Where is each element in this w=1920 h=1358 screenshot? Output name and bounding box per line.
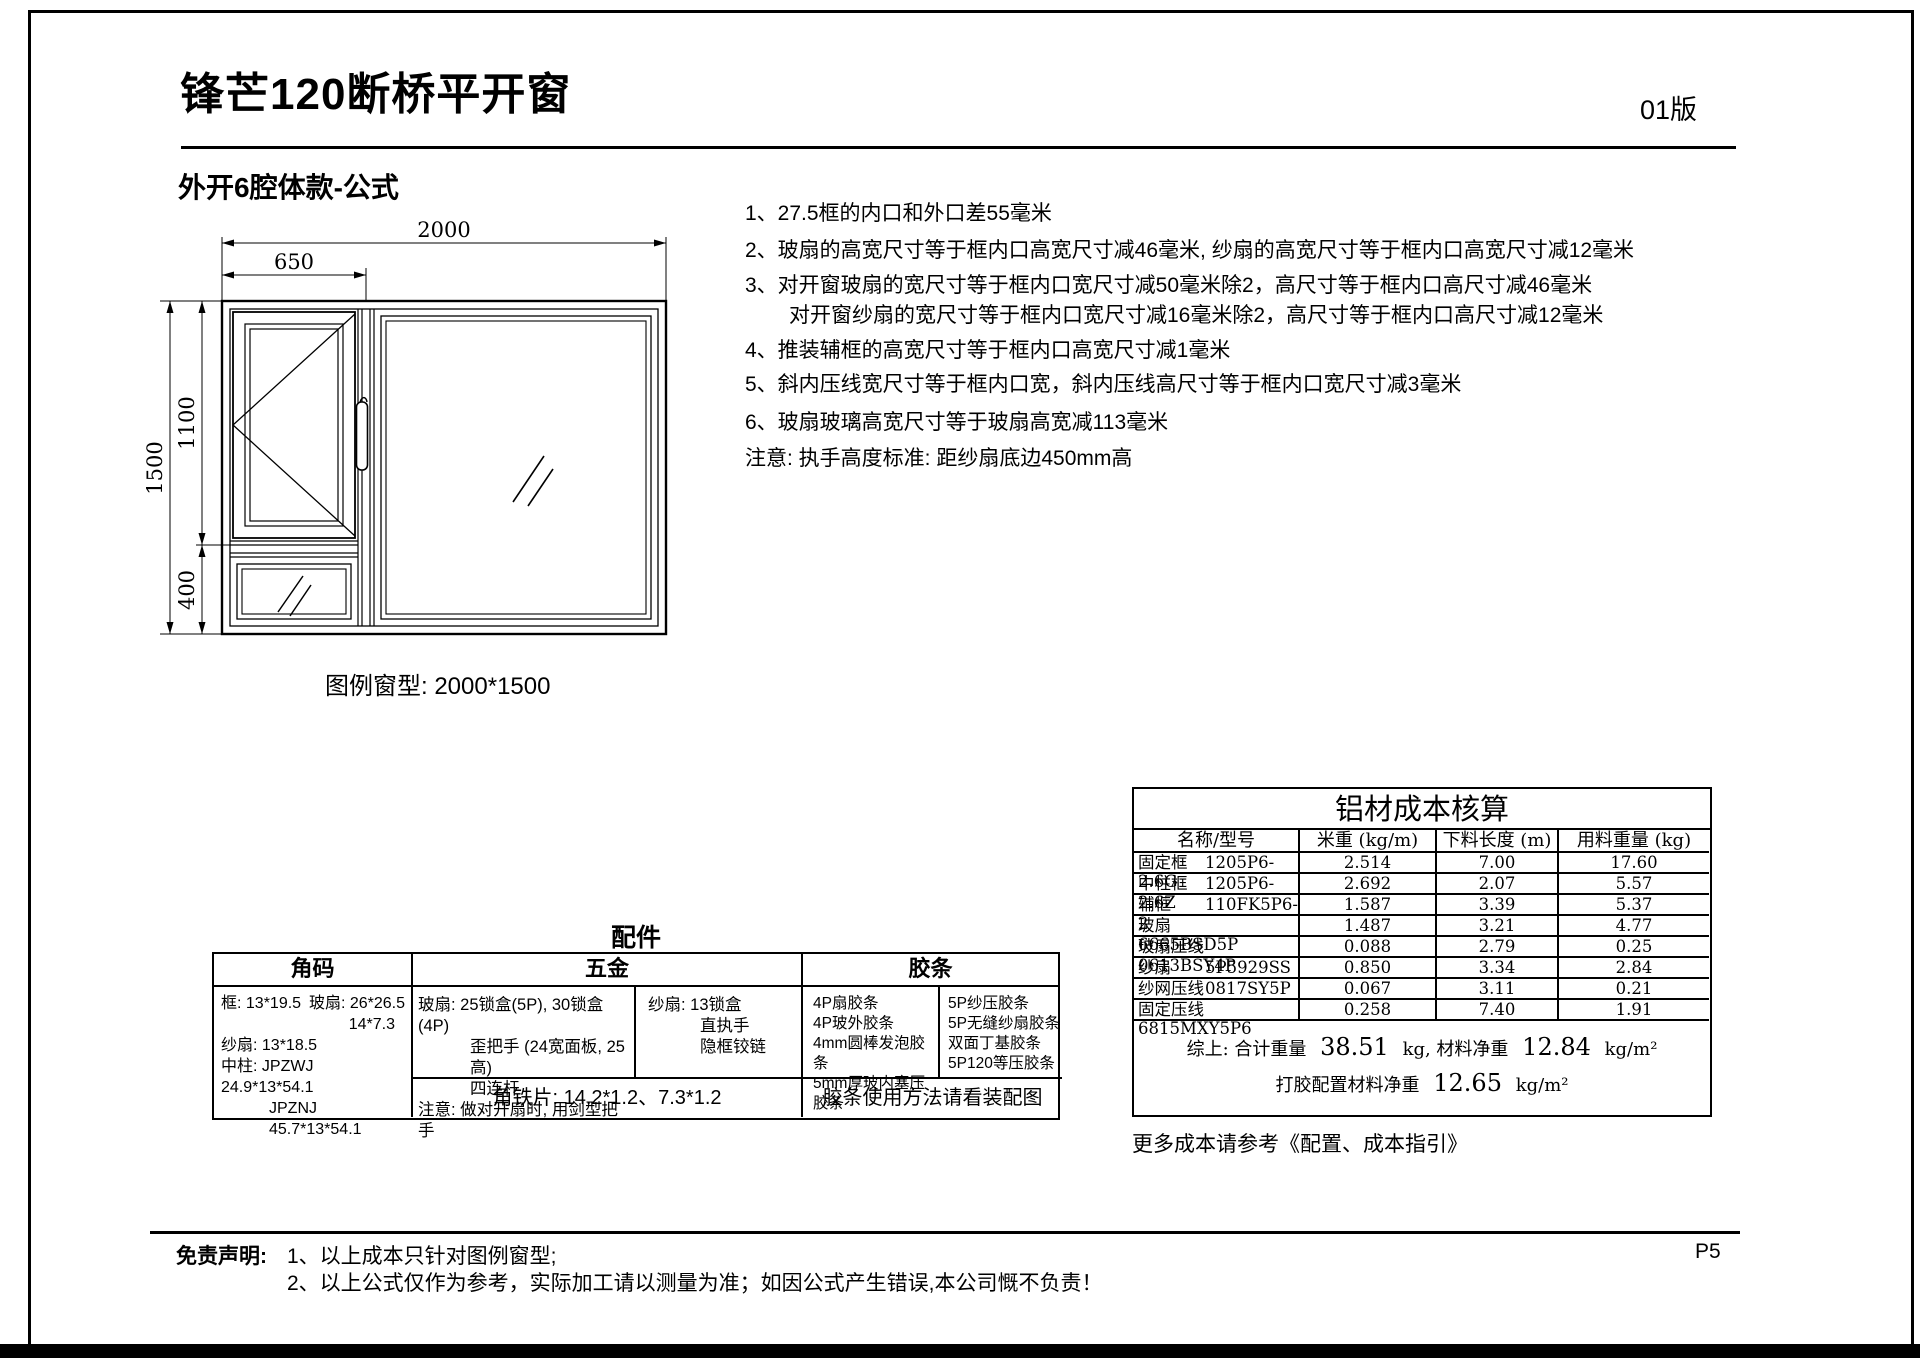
title-divider [181,146,1736,149]
summary2-unit: kg/m² [1516,1075,1569,1096]
corner-frame-spec: 框: 13*19.5 [221,993,301,1014]
screen-hinge: 隐框铰链 [648,1037,801,1058]
hardware-footer: 角铁片: 14.2*1.2、7.3*1.2 [413,1079,803,1117]
gasket-item: 4mm圆棒发泡胶条 [813,1034,938,1074]
header-hardware: 五金 [413,954,803,985]
page-bottom-bar [0,1344,1920,1358]
glass-symbol [513,456,544,502]
corner-mullion-spec: 中柱: JPZWJ 24.9*13*54.1 [221,1056,405,1098]
summary-mid: kg, 材料净重 [1403,1039,1509,1060]
gasket-item: 5P纱压胶条 [948,994,1062,1014]
transom [230,541,358,557]
casement-sash [233,312,355,538]
table-row-cell: 2.79 [1437,937,1559,958]
version-label: 01版 [1640,88,1697,127]
fixed-pane-bottom-left [237,564,351,619]
table-row-cell: 辅框110FK5P6-2 [1134,895,1300,916]
corner-codes-cell: 框: 13*19.5 玻扇: 26*26.5 14*7.3 纱扇: 13*18.… [214,987,413,1117]
screen-handle: 直执手 [648,1016,801,1037]
dim-total-width: 2000 [417,218,470,242]
table-row-cell: 0.25 [1559,937,1709,958]
screen-lockbox: 纱扇: 13锁盒 [648,995,801,1016]
cost-table-grid: 名称/型号 米重 (kg/m) 下料长度 (m) 用料重量 (kg) 固定框12… [1134,830,1710,1021]
table-row-cell: 2.514 [1300,853,1437,874]
accessories-body: 框: 13*19.5 玻扇: 26*26.5 14*7.3 纱扇: 13*18.… [214,987,1058,1117]
summary-total-weight: 38.51 [1312,1033,1397,1061]
gasket-footer: 胶条使用方法请看装配图 [803,1079,1062,1117]
col-name-model: 名称/型号 [1134,830,1300,853]
cost-reference-note: 更多成本请参考《配置、成本指引》 [1132,1128,1468,1158]
table-row-cell: 17.60 [1559,853,1709,874]
header-gaskets: 胶条 [803,954,1058,985]
table-row-cell: 3.39 [1437,895,1559,916]
accessories-title: 配件 [212,918,1060,954]
col-material-weight: 用料重量 (kg) [1559,830,1709,853]
disclaimer-label: 免责声明: [176,1240,267,1270]
window-elevation-drawing: 2000 650 1500 1100 400 [130,175,710,695]
note-line-2: 2、玻扇的高宽尺寸等于框内口高宽尺寸减46毫米, 纱扇的高宽尺寸等于框内口高宽尺… [745,234,1634,264]
gasket-list-left: 4P扇胶条 4P玻外胶条 4mm圆棒发泡胶条 5mm厚玻内塞压胶条 [803,987,940,1079]
glass-symbol [278,576,303,612]
table-row-cell: 3.21 [1437,916,1559,937]
corner-glass-sash-spec2: 14*7.3 [221,1014,405,1035]
table-row-cell: 0.067 [1300,979,1437,1000]
summary-unit: kg/m² [1605,1039,1658,1060]
table-row-cell: 2.84 [1559,958,1709,979]
cost-table-title: 铝材成本核算 [1134,789,1710,830]
col-meter-weight: 米重 (kg/m) [1300,830,1437,853]
window-handle [357,398,368,470]
disclaimer-line-2: 2、以上公式仅作为参考，实际加工请以测量为准；如因公式产生错误,本公司慨不负责！ [287,1267,1103,1297]
dimension-extension-lines [160,237,666,634]
accessories-header-row: 角码 五金 胶条 [214,954,1058,987]
fixed-pane-right [381,316,651,619]
table-row-cell: 1.91 [1559,1000,1709,1021]
hardware-handle: 歪把手 (24宽面板, 25高) [418,1037,634,1079]
window-frame-outer [222,301,666,634]
note-attention-line: 注意: 执手高度标准: 距纱扇底边450mm高 [745,442,1132,472]
table-row-cell: 玻扇压线0613BSY4P [1134,937,1300,958]
table-row-cell: 2.07 [1437,874,1559,895]
summary-net-weight: 12.84 [1514,1033,1599,1061]
dim-left-width: 650 [274,250,314,274]
table-row-cell: 3.34 [1437,958,1559,979]
table-row-cell: 5.37 [1559,895,1709,916]
dim-bottom-height: 400 [175,570,199,610]
aluminum-cost-table: 铝材成本核算 名称/型号 米重 (kg/m) 下料长度 (m) 用料重量 (kg… [1132,787,1712,1117]
dim-total-height: 1500 [143,441,167,494]
drawing-caption: 图例窗型: 2000*1500 [325,666,550,701]
table-row-cell: 4.77 [1559,916,1709,937]
header-corner-codes: 角码 [214,954,413,985]
note-line-6: 6、玻扇玻璃高宽尺寸等于玻扇高宽减113毫米 [745,406,1168,436]
table-row-cell: 0.850 [1300,958,1437,979]
hardware-glass-sash-cell: 玻扇: 25锁盒(5P), 30锁盒 (4P) 歪把手 (24宽面板, 25高)… [413,987,636,1079]
disclaimer-line-1: 1、以上成本只针对图例窗型; [287,1240,557,1270]
corner-glass-sash-spec: 玻扇: 26*26.5 [309,993,405,1014]
corner-screen-sash-spec: 纱扇: 13*18.5 [221,1035,405,1056]
gasket-item: 双面丁基胶条 [948,1034,1062,1054]
document-title: 锋芒120断桥平开窗 [180,58,571,122]
document-page: 锋芒120断桥平开窗 01版 外开6腔体款-公式 1、27.5框的内口和外口差5… [0,0,1920,1358]
col-cut-length: 下料长度 (m) [1437,830,1559,853]
table-row-cell: 2.692 [1300,874,1437,895]
table-row-cell: 0.088 [1300,937,1437,958]
table-row-cell: 中柱框1205P6-2.6Z [1134,874,1300,895]
footer-divider [150,1231,1740,1234]
accessories-table: 角码 五金 胶条 框: 13*19.5 玻扇: 26*26.5 14*7.3 纱… [212,952,1060,1120]
table-row-cell: 纱网压线0817SY5P [1134,979,1300,1000]
summary2-prefix: 打胶配置材料净重 [1276,1075,1420,1096]
gasket-item: 5P无缝纱扇胶条 [948,1014,1062,1034]
window-frame-inner [230,309,658,626]
summary-prefix: 综上: 合计重量 [1187,1039,1307,1060]
hardware-lockbox: 玻扇: 25锁盒(5P), 30锁盒 (4P) [418,995,634,1037]
table-row-cell: 0.258 [1300,1000,1437,1021]
cost-summary: 综上: 合计重量 38.51 kg, 材料净重 12.84 kg/m² 打胶配置… [1134,1021,1710,1097]
gasket-item: 4P玻外胶条 [813,1014,938,1034]
corner-mullion-spec2: JPZNJ 45.7*13*54.1 [221,1098,405,1140]
table-row-cell: 固定压线6815MXY5P6 [1134,1000,1300,1021]
note-line-3: 3、对开窗玻扇的宽尺寸等于框内口宽尺寸减50毫米除2，高尺寸等于框内口高尺寸减4… [745,269,1592,299]
gasket-item: 4P扇胶条 [813,994,938,1014]
note-line-3b: 对开窗纱扇的宽尺寸等于框内口宽尺寸减16毫米除2，高尺寸等于框内口高尺寸减12毫… [789,299,1603,329]
sash-opening-symbol [233,314,355,536]
summary2-value: 12.65 [1425,1069,1510,1097]
note-line-5: 5、斜内压线宽尺寸等于框内口宽，斜内压线高尺寸等于框内口宽尺寸减3毫米 [745,368,1461,398]
note-line-1: 1、27.5框的内口和外口差55毫米 [745,197,1052,227]
page-number: P5 [1695,1240,1721,1264]
dim-sash-height: 1100 [175,396,199,449]
table-row-cell: 纱扇5P5929SS [1134,958,1300,979]
gasket-list-right: 5P纱压胶条 5P无缝纱扇胶条 双面丁基胶条 5P120等压胶条 [940,987,1062,1079]
dimension-arrows [167,240,667,635]
table-row-cell: 1.587 [1300,895,1437,916]
gasket-item: 5P120等压胶条 [948,1054,1062,1074]
hardware-screen-sash-cell: 纱扇: 13锁盒 直执手 隐框铰链 [636,987,803,1079]
table-row-cell: 7.00 [1437,853,1559,874]
table-row-cell: 玻扇6665BSD5P [1134,916,1300,937]
table-row-cell: 3.11 [1437,979,1559,1000]
table-row-cell: 固定框1205P6-2.6G [1134,853,1300,874]
table-row-cell: 1.487 [1300,916,1437,937]
table-row-cell: 5.57 [1559,874,1709,895]
note-line-4: 4、推装辅框的高宽尺寸等于框内口高宽尺寸减1毫米 [745,334,1230,364]
table-row-cell: 0.21 [1559,979,1709,1000]
table-row-cell: 7.40 [1437,1000,1559,1021]
